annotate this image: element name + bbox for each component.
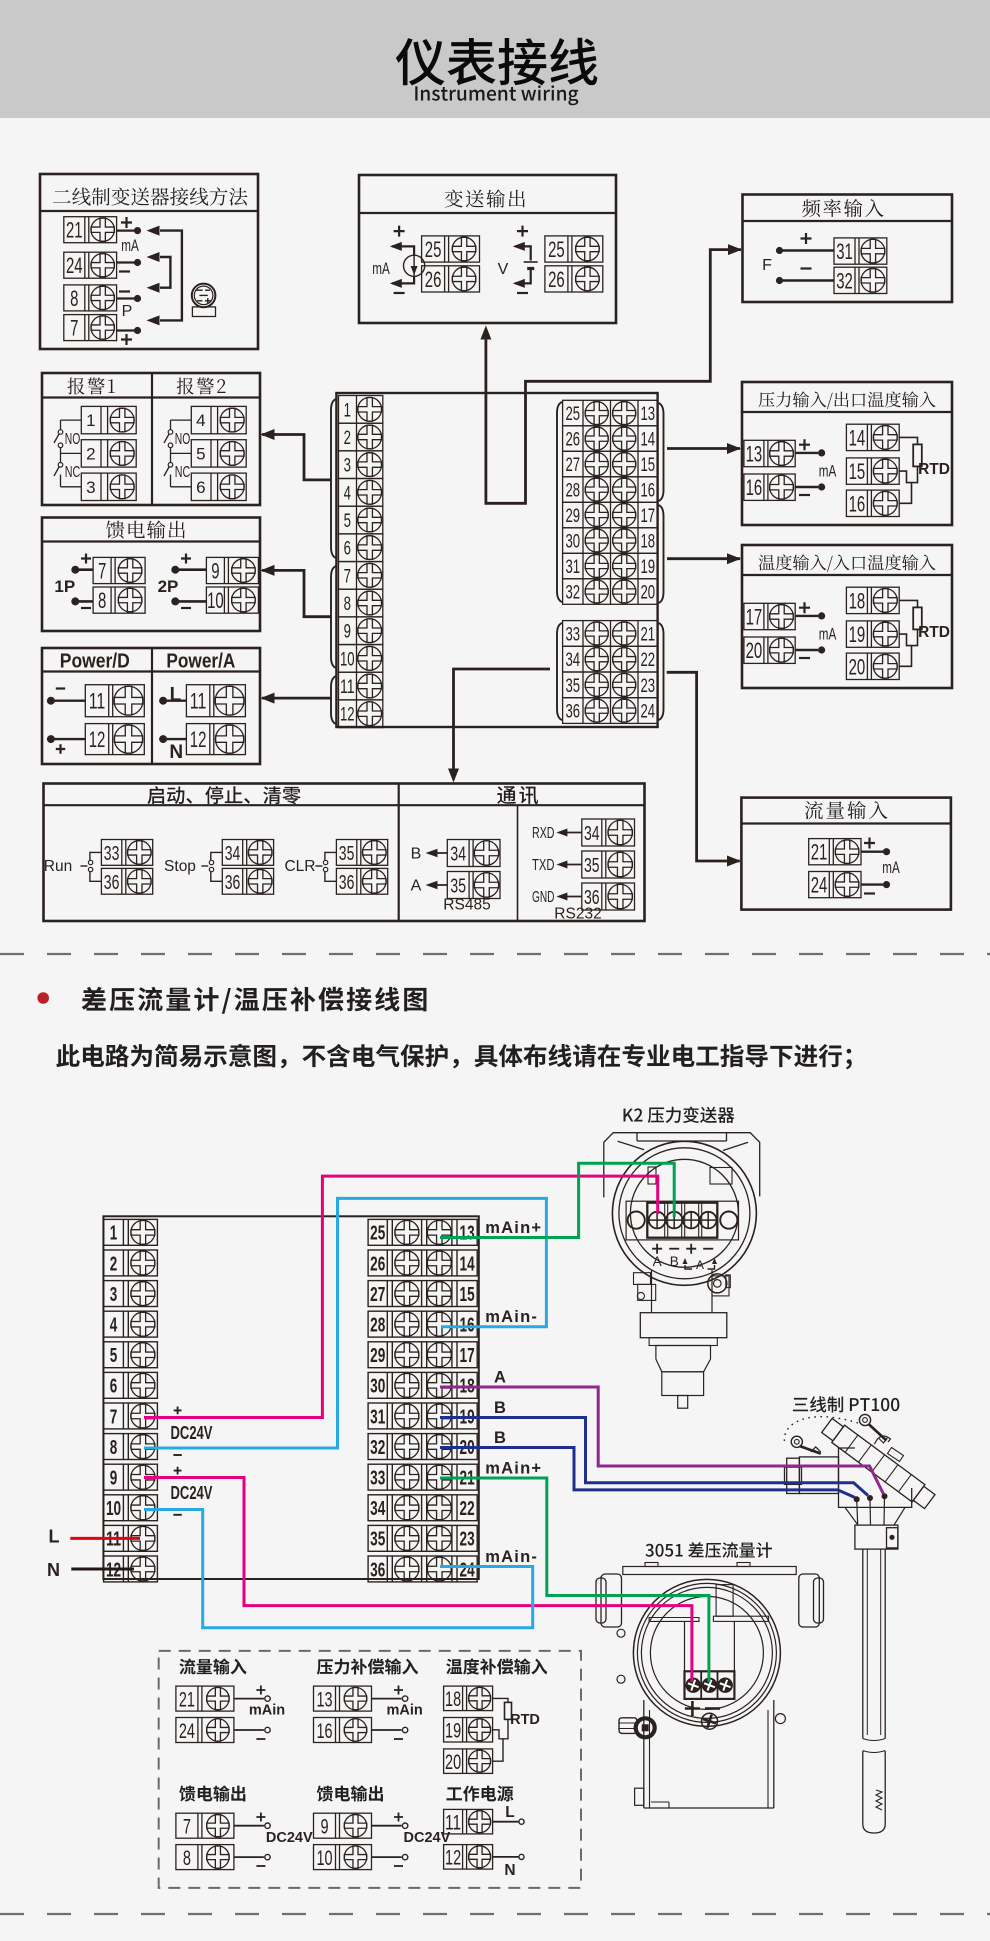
svg-text:24: 24 <box>460 1559 475 1581</box>
svg-text:A: A <box>696 1258 704 1272</box>
svg-text:N: N <box>504 1862 515 1879</box>
svg-text:19: 19 <box>641 557 656 578</box>
svg-text:A: A <box>494 1369 507 1387</box>
svg-text:24: 24 <box>811 873 828 898</box>
svg-text:7: 7 <box>183 1815 191 1839</box>
svg-text:16: 16 <box>641 481 656 502</box>
svg-text:NC: NC <box>65 464 81 481</box>
svg-text:10: 10 <box>340 649 355 670</box>
svg-text:36: 36 <box>104 871 120 894</box>
svg-text:CLR: CLR <box>284 858 315 875</box>
svg-text:B: B <box>494 1429 507 1447</box>
svg-text:23: 23 <box>641 676 656 697</box>
svg-text:2: 2 <box>344 428 351 449</box>
svg-text:17: 17 <box>746 605 763 630</box>
svg-text:27: 27 <box>370 1284 385 1306</box>
svg-text:18: 18 <box>445 1687 461 1711</box>
svg-text:F: F <box>762 257 772 274</box>
svg-text:19: 19 <box>445 1719 461 1743</box>
svg-text:14: 14 <box>641 430 656 451</box>
svg-text:24: 24 <box>179 1719 195 1743</box>
svg-text:RTD: RTD <box>918 461 950 478</box>
svg-text:34: 34 <box>450 843 466 866</box>
svg-text:GND: GND <box>532 889 555 906</box>
svg-text:20: 20 <box>445 1750 461 1774</box>
svg-text:11: 11 <box>340 677 355 698</box>
svg-text:28: 28 <box>370 1315 385 1337</box>
svg-text:mA: mA <box>819 462 837 481</box>
svg-text:mA: mA <box>882 858 900 877</box>
svg-text:16: 16 <box>746 475 763 500</box>
svg-text:22: 22 <box>460 1498 475 1520</box>
svg-text:22: 22 <box>641 650 656 671</box>
svg-text:31: 31 <box>566 557 581 578</box>
svg-text:6: 6 <box>344 539 351 560</box>
svg-text:18: 18 <box>849 588 866 613</box>
svg-text:36: 36 <box>370 1559 385 1581</box>
svg-text:L: L <box>49 1527 60 1547</box>
svg-text:12: 12 <box>445 1846 461 1870</box>
svg-text:17: 17 <box>641 506 656 527</box>
svg-text:Power/A: Power/A <box>166 650 235 673</box>
svg-text:1: 1 <box>110 1223 118 1245</box>
svg-text:12: 12 <box>340 705 355 726</box>
svg-text:NO: NO <box>65 431 81 448</box>
svg-text:2: 2 <box>110 1253 118 1275</box>
svg-text:24: 24 <box>641 702 656 723</box>
svg-text:8: 8 <box>98 588 106 613</box>
svg-text:mAin: mAin <box>249 1703 285 1719</box>
svg-text:11: 11 <box>89 689 106 714</box>
svg-text:34: 34 <box>225 842 241 865</box>
svg-text:35: 35 <box>450 875 466 898</box>
svg-text:18: 18 <box>641 532 656 553</box>
svg-text:21: 21 <box>66 218 83 243</box>
svg-text:A: A <box>411 878 422 895</box>
svg-text:36: 36 <box>225 871 241 894</box>
svg-text:1: 1 <box>86 411 95 430</box>
svg-text:26: 26 <box>566 430 581 451</box>
svg-text:12: 12 <box>89 727 106 752</box>
svg-text:31: 31 <box>370 1406 385 1428</box>
svg-text:25: 25 <box>370 1223 385 1245</box>
svg-text:26: 26 <box>548 267 565 292</box>
svg-text:10: 10 <box>207 588 224 613</box>
svg-text:5: 5 <box>110 1345 118 1367</box>
svg-text:14: 14 <box>849 425 866 450</box>
svg-text:P: P <box>122 303 133 320</box>
svg-text:15: 15 <box>641 455 656 476</box>
svg-text:36: 36 <box>566 702 581 723</box>
svg-text:33: 33 <box>370 1468 385 1490</box>
svg-text:5: 5 <box>196 444 205 463</box>
svg-text:8: 8 <box>344 594 351 615</box>
svg-text:17: 17 <box>460 1345 475 1367</box>
svg-text:DC24V: DC24V <box>171 1423 213 1443</box>
svg-text:34: 34 <box>566 650 581 671</box>
svg-text:mA: mA <box>372 259 390 278</box>
svg-text:13: 13 <box>641 404 656 425</box>
svg-text:Stop: Stop <box>164 858 196 875</box>
svg-text:20: 20 <box>641 583 656 604</box>
svg-text:NC: NC <box>175 464 191 481</box>
svg-text:36: 36 <box>339 871 355 894</box>
svg-text:20: 20 <box>849 654 866 679</box>
svg-text:7: 7 <box>98 559 106 584</box>
svg-text:4: 4 <box>110 1315 118 1337</box>
svg-text:7: 7 <box>344 566 351 587</box>
svg-text:10: 10 <box>106 1498 121 1520</box>
svg-text:3: 3 <box>344 456 351 477</box>
svg-text:20: 20 <box>746 638 763 663</box>
svg-text:13: 13 <box>316 1687 332 1711</box>
svg-text:4: 4 <box>196 411 205 430</box>
svg-text:L: L <box>170 684 182 705</box>
svg-text:L: L <box>505 1804 514 1821</box>
svg-text:19: 19 <box>849 622 866 647</box>
svg-text:21: 21 <box>811 840 828 865</box>
svg-text:24: 24 <box>66 253 83 278</box>
svg-text:mA: mA <box>121 236 139 255</box>
svg-text:30: 30 <box>566 532 581 553</box>
svg-text:NO: NO <box>175 431 191 448</box>
svg-text:15: 15 <box>849 459 866 484</box>
svg-text:1: 1 <box>344 400 351 421</box>
svg-text:10: 10 <box>316 1846 332 1870</box>
svg-text:mAin+: mAin+ <box>485 1460 542 1478</box>
svg-text:7: 7 <box>70 316 78 341</box>
svg-text:N: N <box>169 742 183 763</box>
svg-text:13: 13 <box>746 442 763 467</box>
svg-text:34: 34 <box>370 1498 385 1520</box>
svg-text:B: B <box>670 1254 679 1269</box>
svg-text:A: A <box>653 1254 662 1269</box>
svg-text:21: 21 <box>641 625 656 646</box>
svg-text:3: 3 <box>86 478 95 497</box>
svg-text:N: N <box>47 1560 60 1580</box>
svg-text:14: 14 <box>460 1253 475 1275</box>
svg-text:RS232: RS232 <box>554 906 601 923</box>
svg-text:31: 31 <box>836 239 853 264</box>
svg-text:32: 32 <box>836 268 853 293</box>
svg-text:15: 15 <box>460 1284 475 1306</box>
svg-text:mA: mA <box>819 625 837 644</box>
svg-text:11: 11 <box>445 1810 461 1834</box>
svg-text:33: 33 <box>104 842 120 865</box>
svg-text:30: 30 <box>370 1376 385 1398</box>
svg-text:3: 3 <box>110 1284 118 1306</box>
svg-text:34: 34 <box>584 822 600 845</box>
svg-text:9: 9 <box>320 1815 328 1839</box>
svg-text:9: 9 <box>344 622 351 643</box>
svg-text:33: 33 <box>566 625 581 646</box>
svg-text:V: V <box>498 261 509 278</box>
svg-text:32: 32 <box>370 1437 385 1459</box>
svg-text:35: 35 <box>566 676 581 697</box>
svg-text:TXD: TXD <box>532 857 555 874</box>
svg-text:32: 32 <box>566 583 581 604</box>
svg-text:25: 25 <box>425 237 442 262</box>
svg-text:35: 35 <box>370 1529 385 1551</box>
svg-text:29: 29 <box>566 506 581 527</box>
svg-text:26: 26 <box>425 267 442 292</box>
svg-text:26: 26 <box>370 1253 385 1275</box>
svg-text:RS485: RS485 <box>443 897 490 914</box>
svg-text:29: 29 <box>370 1345 385 1367</box>
svg-text:RXD: RXD <box>532 825 555 842</box>
svg-text:7: 7 <box>110 1406 118 1428</box>
svg-text:27: 27 <box>566 455 581 476</box>
svg-text:mAin+: mAin+ <box>485 1219 542 1237</box>
svg-text:35: 35 <box>339 842 355 865</box>
svg-text:DC24V: DC24V <box>266 1830 313 1846</box>
svg-text:12: 12 <box>190 727 207 752</box>
svg-text:23: 23 <box>460 1529 475 1551</box>
svg-text:mAin-: mAin- <box>485 1548 538 1566</box>
svg-text:8: 8 <box>70 286 78 311</box>
svg-text:25: 25 <box>566 404 581 425</box>
svg-text:B: B <box>494 1399 507 1417</box>
svg-text:B: B <box>411 846 422 863</box>
svg-text:5: 5 <box>344 511 351 532</box>
svg-text:6: 6 <box>110 1376 118 1398</box>
svg-text:4: 4 <box>344 483 352 504</box>
svg-text:16: 16 <box>316 1719 332 1743</box>
svg-text:RTD: RTD <box>918 624 950 641</box>
svg-text:11: 11 <box>190 689 207 714</box>
svg-text:Power/D: Power/D <box>60 650 130 673</box>
svg-text:RTD: RTD <box>510 1712 540 1728</box>
svg-text:21: 21 <box>179 1687 195 1711</box>
svg-text:2: 2 <box>86 444 95 463</box>
svg-text:16: 16 <box>849 491 866 516</box>
svg-text:mAin-: mAin- <box>485 1308 538 1326</box>
svg-text:mAin: mAin <box>387 1703 423 1719</box>
svg-text:Run: Run <box>44 858 72 875</box>
svg-text:13: 13 <box>460 1223 475 1245</box>
svg-text:35: 35 <box>584 854 600 877</box>
svg-text:6: 6 <box>196 478 205 497</box>
svg-text:9: 9 <box>110 1468 118 1490</box>
svg-text:28: 28 <box>566 481 581 502</box>
svg-text:1P: 1P <box>54 577 75 596</box>
svg-text:8: 8 <box>183 1846 191 1870</box>
svg-text:DC24V: DC24V <box>171 1483 213 1503</box>
svg-text:2P: 2P <box>158 577 179 596</box>
svg-text:25: 25 <box>548 237 565 262</box>
svg-text:9: 9 <box>211 559 219 584</box>
svg-text:8: 8 <box>110 1437 118 1459</box>
